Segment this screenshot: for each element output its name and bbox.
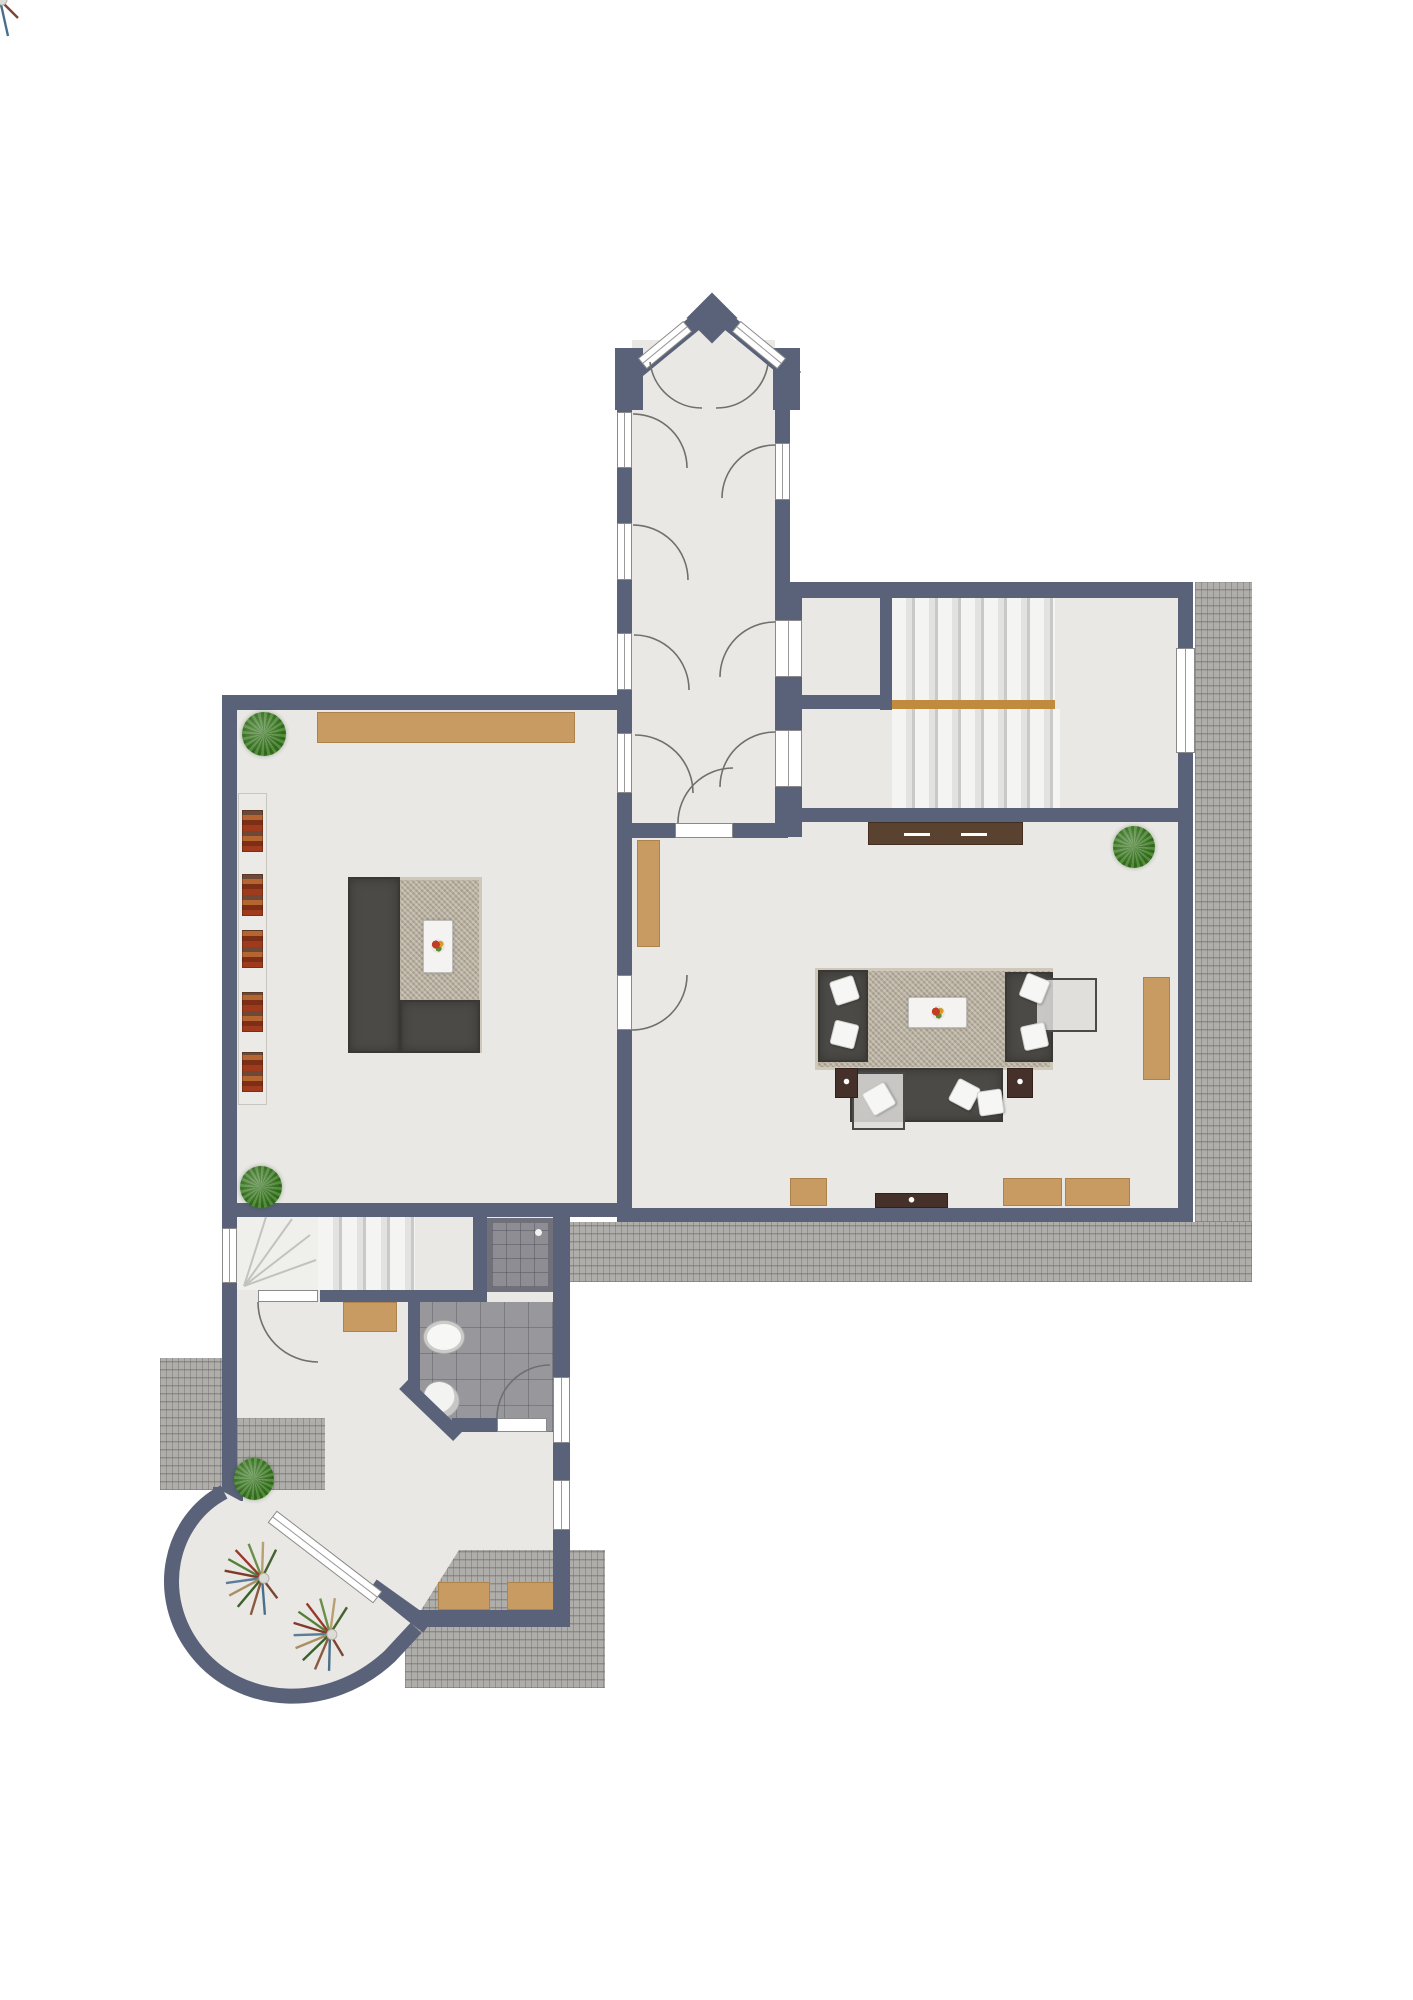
books-5 (242, 1052, 263, 1092)
plant-right-room (1113, 826, 1155, 868)
wall-stair-hall-south (788, 808, 1193, 822)
terrace-entry-left (160, 1358, 222, 1490)
wall-small-room-south (788, 695, 892, 709)
wall-left-room-south (222, 1203, 632, 1217)
door-corridor-south (675, 823, 733, 838)
bay-apex-pier (687, 293, 738, 344)
sideboard-stair-wall (868, 822, 1023, 845)
wall-stairs-south (320, 1290, 487, 1302)
window-corridor-west-2 (617, 523, 632, 580)
pillow-4 (1020, 1022, 1050, 1052)
books-3 (242, 930, 263, 968)
wall-outer-west (222, 695, 237, 1490)
stairs-landing-edge (892, 700, 1055, 709)
window-stair-hall-east (1176, 648, 1195, 753)
plant-left-room-north (242, 712, 286, 756)
stairs-winder-straight (318, 1217, 415, 1290)
bench-sw-terrace-1 (438, 1582, 490, 1610)
window-corridor-east-2 (775, 620, 802, 677)
wall-stair-hall-north (775, 582, 1193, 598)
wall-hall-south (417, 1610, 557, 1627)
dried-plant-arrangement (0, 0, 18, 38)
wall-bath-south (452, 1418, 497, 1432)
wall-shower-west (473, 1217, 487, 1302)
window-hall-west (222, 1228, 237, 1283)
pillow-6 (976, 1088, 1004, 1116)
wall-bath-west (408, 1290, 420, 1390)
side-table-east (1007, 1068, 1033, 1098)
bench-south-1 (790, 1178, 827, 1206)
floor-winder-fan (237, 1217, 320, 1290)
bench-sw-terrace-2 (507, 1582, 555, 1610)
doormat-entry (343, 1302, 397, 1332)
tv-console (875, 1193, 948, 1208)
window-corridor-east-3 (775, 730, 802, 787)
terrace-bottom (567, 1222, 1252, 1282)
door-bathroom (497, 1418, 547, 1432)
books-1 (242, 810, 263, 852)
wall-small-room-east (880, 598, 892, 710)
fruit-bowl-left (431, 939, 445, 953)
bench-south-3 (1065, 1178, 1130, 1206)
fruit-bowl-right (931, 1006, 945, 1020)
wall-right-room-south (617, 1208, 1193, 1222)
window-hall-east-2 (553, 1480, 570, 1530)
floor-corridor (632, 340, 775, 823)
cabinet-right-room-west (637, 840, 660, 947)
window-corridor-east-1 (775, 443, 790, 500)
plant-left-room-south (240, 1166, 282, 1208)
shower (487, 1218, 553, 1292)
plant-entry (234, 1458, 274, 1500)
sideboard-left-room (317, 712, 575, 743)
side-table-west (835, 1068, 858, 1098)
door-rooms-divider (617, 975, 632, 1030)
books-2 (242, 874, 263, 916)
stairs-lower-flight (892, 709, 1060, 808)
window-corridor-west-3 (617, 633, 632, 690)
wall-corridor-south-e (733, 823, 788, 838)
sofa-left-room-bottom (400, 1000, 480, 1053)
sink (423, 1320, 465, 1354)
terrace-right (1195, 582, 1252, 1222)
wall-left-room-north (222, 695, 632, 710)
door-entry (258, 1290, 318, 1302)
window-corridor-west-1 (617, 412, 632, 468)
window-hall-east-1 (553, 1377, 570, 1443)
cabinet-right-room-east (1143, 977, 1170, 1080)
books-4 (242, 992, 263, 1032)
floor-plan (0, 0, 1413, 2000)
wall-corridor-south-w (617, 823, 675, 838)
window-corridor-west-4 (617, 733, 632, 793)
bench-south-2 (1003, 1178, 1062, 1206)
sofa-left-room-side (348, 877, 400, 1053)
stairs-upper-flight (892, 598, 1055, 700)
